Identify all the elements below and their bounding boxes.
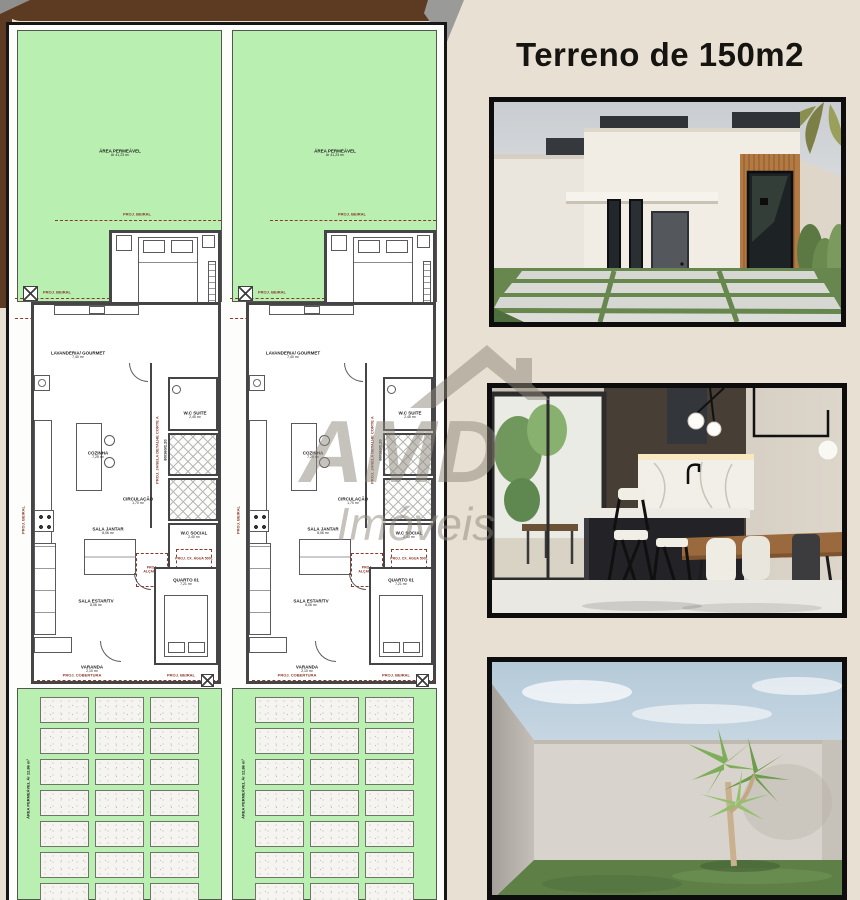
proj-beiral-vertical-label: PROJ. BEIRAL xyxy=(236,506,241,534)
lavanderia-label: LAVANDERIA/ GOURMET 7,40 m² xyxy=(51,350,105,359)
paver-block xyxy=(150,728,199,754)
pillow-icon xyxy=(168,642,185,653)
wc-suite-label: W.C SUITE 2,45 m² xyxy=(398,410,421,419)
paver-block xyxy=(310,790,359,816)
paver-block xyxy=(95,821,144,847)
proj-beiral-label-top: PROJ. BEIRAL xyxy=(338,212,366,217)
paver-block xyxy=(255,852,304,878)
room-wc-social: W.C SOCIAL 2,40 m² PROJ. CX. ÁGUA 500L xyxy=(383,523,433,573)
proj-janela-label: PROJ. JANELA DETALHE CORTE A xyxy=(155,416,160,484)
measure-label: 80/160/2.20 xyxy=(163,439,168,460)
sofa-seat-icon xyxy=(249,637,287,653)
door-arc xyxy=(129,363,148,382)
photo-backyard xyxy=(487,657,847,900)
shower-box xyxy=(168,478,218,521)
wc-social-label: W.C SOCIAL 2,40 m² xyxy=(396,530,423,539)
paver-block xyxy=(310,883,359,900)
lavanderia-label: LAVANDERIA/ GOURMET 7,40 m² xyxy=(266,350,320,359)
paver-block xyxy=(40,759,89,785)
kitchen-floor xyxy=(492,580,842,613)
flyer-stage: ÁREA PERMEÁVEL Ár 41,23 m² PROJ. BEIRAL … xyxy=(0,0,860,900)
unit-plan: ÁREA PERMEÁVEL Ár 41,23 m² PROJ. BEIRAL … xyxy=(17,30,222,900)
door-arc xyxy=(134,573,151,590)
paver-block xyxy=(40,790,89,816)
proj-beiral-line-top xyxy=(270,220,436,221)
nightstand-icon xyxy=(417,235,430,248)
proj-beiral-label-bottom: PROJ. BEIRAL xyxy=(382,673,410,678)
nightstand-icon xyxy=(116,235,132,251)
cx-agua-label: PROJ. CX. ÁGUA 500L xyxy=(175,557,212,561)
sink-icon xyxy=(304,306,320,314)
sala-estar-label: SALA ESTAR/TV 8,06 m² xyxy=(293,598,328,607)
paver-block xyxy=(365,821,414,847)
wc-suite-label: W.C SUITE 2,45 m² xyxy=(183,410,206,419)
unit-plan-2: ÁREA PERMEÁVEL Ár 41,23 m² PROJ. BEIRAL … xyxy=(232,30,437,900)
paver-block xyxy=(40,883,89,900)
toilet-icon xyxy=(172,385,181,394)
proj-janela-label: PROJ. JANELA DETALHE CORTE A xyxy=(370,416,375,484)
column-symbol xyxy=(23,286,38,301)
column-symbol xyxy=(201,674,214,687)
paver-block xyxy=(150,852,199,878)
paver-block xyxy=(310,852,359,878)
washer-icon xyxy=(34,375,50,391)
paver-block xyxy=(255,883,304,900)
paver-block xyxy=(365,697,414,723)
paver-block xyxy=(40,728,89,754)
paver-block xyxy=(255,697,304,723)
shower-box xyxy=(168,433,218,476)
door-arc xyxy=(344,363,363,382)
paver-block xyxy=(150,883,199,900)
paver-block xyxy=(40,697,89,723)
pillow-icon xyxy=(386,240,408,253)
nightstand-icon xyxy=(331,235,347,251)
pillow-icon xyxy=(383,642,400,653)
cx-agua-label: PROJ. CX. ÁGUA 500L xyxy=(390,557,427,561)
toilet-icon xyxy=(387,385,396,394)
blanket-line xyxy=(139,262,197,263)
stool-icon xyxy=(104,435,115,446)
paver-grid xyxy=(40,697,199,900)
paver-block xyxy=(310,821,359,847)
pillow-icon xyxy=(171,240,193,253)
driveway-area: ÁREA PERMEÁVEL Ár 12,86 m² xyxy=(232,688,437,900)
paver-block xyxy=(365,759,414,785)
sofa-icon xyxy=(249,543,271,635)
room-quarto: QUARTO 01 7,21 m² xyxy=(369,567,433,665)
shower-box xyxy=(383,478,433,521)
proj-beiral-label-top: PROJ. BEIRAL xyxy=(123,212,151,217)
paver-block xyxy=(255,728,304,754)
quarto-label: QUARTO 01 7,21 m² xyxy=(388,577,414,586)
cozinha-label: COZINHA 7,25 m² xyxy=(88,450,109,459)
paver-grid xyxy=(255,697,414,900)
paver-block xyxy=(365,852,414,878)
paver-block xyxy=(150,821,199,847)
bed-icon xyxy=(164,595,208,657)
proj-beiral-line-top xyxy=(55,220,221,221)
page-title: Terreno de 150m2 xyxy=(460,36,860,74)
wc-social-label: W.C SOCIAL 2,40 m² xyxy=(181,530,208,539)
room-quarto: QUARTO 01 7,21 m² xyxy=(154,567,218,665)
paver-block xyxy=(95,883,144,900)
lawn xyxy=(492,860,842,895)
bed-icon xyxy=(379,595,423,657)
paver-block xyxy=(95,728,144,754)
photo-facade xyxy=(489,97,846,327)
paver-block xyxy=(310,759,359,785)
sofa-seat-icon xyxy=(34,637,72,653)
paver-block xyxy=(95,697,144,723)
front-yard-label: ÁREA PERMEÁVEL Ár 41,23 m² xyxy=(314,148,356,157)
proj-cobertura-line-bottom xyxy=(37,680,142,681)
measure-label: 80/160/2.20 xyxy=(378,439,383,460)
column-symbol xyxy=(238,286,253,301)
stool-icon xyxy=(319,435,330,446)
door-arc xyxy=(315,641,336,662)
sala-estar-label: SALA ESTAR/TV 8,06 m² xyxy=(78,598,113,607)
photo-kitchen xyxy=(487,383,847,618)
paver-block xyxy=(310,697,359,723)
sala-jantar-label: SALA JANTAR 8,06 m² xyxy=(307,526,338,535)
proj-beiral-label-bottom: PROJ. BEIRAL xyxy=(167,673,195,678)
proj-cobertura-label-bottom: PROJ. COBERTURA xyxy=(63,673,102,678)
sofa-icon xyxy=(34,543,56,635)
proj-cobertura-label-bottom: PROJ. COBERTURA xyxy=(278,673,317,678)
pillow-icon xyxy=(143,240,165,253)
front-yard-label: ÁREA PERMEÁVEL Ár 41,23 m² xyxy=(99,148,141,157)
stove-icon xyxy=(34,510,54,532)
paver-block xyxy=(150,697,199,723)
proj-cobertura-line-bottom xyxy=(252,680,357,681)
pillow-icon xyxy=(358,240,380,253)
quarto-label: QUARTO 01 7,21 m² xyxy=(173,577,199,586)
cozinha-label: COZINHA 7,25 m² xyxy=(303,450,324,459)
paver-block xyxy=(365,790,414,816)
dining-table-icon xyxy=(299,539,351,575)
sink-icon xyxy=(89,306,105,314)
driveway-area: ÁREA PERMEÁVEL Ár 12,86 m² xyxy=(17,688,222,900)
main-house: LAVANDERIA/ GOURMET 7,40 m² COZINHA 7,25… xyxy=(246,302,436,684)
paver-block xyxy=(150,759,199,785)
paver-block xyxy=(95,790,144,816)
dining-table-icon xyxy=(84,539,136,575)
room-wc-suite: W.C SUITE 2,45 m² xyxy=(168,377,218,431)
paver-block xyxy=(255,759,304,785)
driveway-vertical-label: ÁREA PERMEÁVEL Ár 12,86 m² xyxy=(26,759,31,819)
paver-block xyxy=(255,821,304,847)
pillow-icon xyxy=(403,642,420,653)
pillow-icon xyxy=(188,642,205,653)
proj-beiral-label-mid: PROJ. BEIRAL xyxy=(258,290,286,295)
blanket-line xyxy=(354,262,412,263)
paver-block xyxy=(40,852,89,878)
nightstand-icon xyxy=(202,235,215,248)
paver-block xyxy=(95,852,144,878)
driveway-vertical-label: ÁREA PERMEÁVEL Ár 12,86 m² xyxy=(241,759,246,819)
circulacao-label: CIRCULAÇÃO 1,70 m² xyxy=(123,496,153,505)
paver-block xyxy=(95,759,144,785)
paver-block xyxy=(40,821,89,847)
brown-header-bar xyxy=(4,0,444,21)
paver-block xyxy=(150,790,199,816)
room-wc-social: W.C SOCIAL 2,40 m² PROJ. CX. ÁGUA 500L xyxy=(168,523,218,573)
shower-box xyxy=(383,433,433,476)
sala-jantar-label: SALA JANTAR 8,06 m² xyxy=(92,526,123,535)
paver-block xyxy=(310,728,359,754)
main-house: LAVANDERIA/ GOURMET 7,40 m² COZINHA 7,25… xyxy=(31,302,221,684)
paver-block xyxy=(365,728,414,754)
column-symbol xyxy=(416,674,429,687)
paver-block xyxy=(255,790,304,816)
proj-beiral-vertical-label: PROJ. BEIRAL xyxy=(21,506,26,534)
room-wc-suite: W.C SUITE 2,45 m² xyxy=(383,377,433,431)
circulacao-label: CIRCULAÇÃO 1,70 m² xyxy=(338,496,368,505)
door-arc xyxy=(349,573,366,590)
paver-block xyxy=(365,883,414,900)
washer-icon xyxy=(249,375,265,391)
driveway xyxy=(494,268,841,322)
door-arc xyxy=(100,641,121,662)
stove-icon xyxy=(249,510,269,532)
proj-beiral-label-mid: PROJ. BEIRAL xyxy=(43,290,71,295)
plan-sheet: ÁREA PERMEÁVEL Ár 41,23 m² PROJ. BEIRAL … xyxy=(6,22,447,900)
